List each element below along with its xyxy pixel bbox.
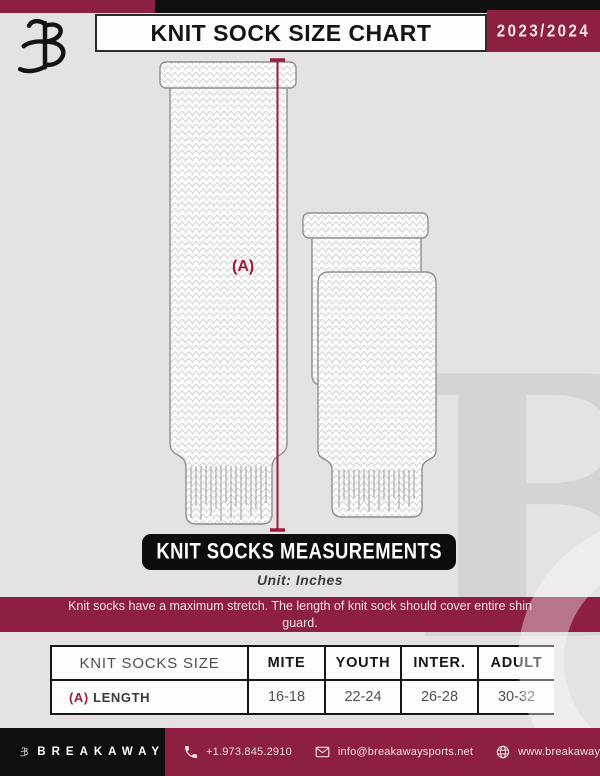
measure-label-a: (A) [232,258,254,275]
size-table-header-row: KNIT SOCKS SIZE MITE YOUTH INTER. ADULT [51,646,554,680]
phone-icon [183,744,199,760]
size-chart-page: B KNIT SOCK SIZE CHART 2023/2024 [0,0,600,776]
top-accent-strip-maroon [0,0,155,13]
sock-large [160,62,296,524]
column-header-youth: YOUTH [325,646,401,680]
value-adult: 30-32 [478,680,554,714]
breakaway-footer-logo-icon [20,737,29,767]
phone-contact[interactable]: +1.973.845.2910 [183,744,292,760]
email-icon [314,744,331,760]
column-header-adult: ADULT [478,646,554,680]
sock-diagram: (A) [140,55,460,535]
website-url: www.breakawaysports.net [518,746,600,758]
email-address: info@breakawaysports.net [338,746,473,758]
phone-number: +1.973.845.2910 [206,746,292,758]
unit-label: Unit: Inches [0,572,600,588]
email-contact[interactable]: info@breakawaysports.net [314,744,473,760]
stretch-note-banner: Knit socks have a maximum stretch. The l… [0,597,600,632]
value-youth: 22-24 [325,680,401,714]
footer-contact-block: +1.973.845.2910 info@breakawaysports.net [165,728,600,776]
row-label-text: LENGTH [93,690,150,705]
size-table: KNIT SOCKS SIZE MITE YOUTH INTER. ADULT … [50,645,554,715]
page-title-bar: KNIT SOCK SIZE CHART [95,14,487,52]
season-label: 2023/2024 [497,21,590,41]
measurements-banner: KNIT SOCKS MEASUREMENTS [142,534,456,570]
row-label-length: (A) LENGTH [51,680,248,714]
value-inter: 26-28 [401,680,478,714]
globe-icon [495,744,511,760]
size-table-title-cell: KNIT SOCKS SIZE [51,646,248,680]
website-contact[interactable]: www.breakawaysports.net [495,744,600,760]
measurements-banner-label: KNIT SOCKS MEASUREMENTS [156,539,442,565]
stretch-note-text: Knit socks have a maximum stretch. The l… [65,598,535,631]
value-mite: 16-18 [248,680,325,714]
table-row-length: (A) LENGTH 16-18 22-24 26-28 30-32 [51,680,554,714]
column-header-mite: MITE [248,646,325,680]
footer-brand-block: BREAKAWAY [0,728,165,776]
page-title: KNIT SOCK SIZE CHART [151,20,432,47]
season-badge: 2023/2024 [487,10,600,52]
breakaway-logo-icon [16,16,74,78]
column-header-inter: INTER. [401,646,478,680]
row-key-a: (A) [69,690,89,705]
footer-bar: BREAKAWAY +1.973.845.2910 info@breakaway… [0,728,600,776]
brand-name: BREAKAWAY [37,746,165,758]
sock-small [318,272,436,517]
